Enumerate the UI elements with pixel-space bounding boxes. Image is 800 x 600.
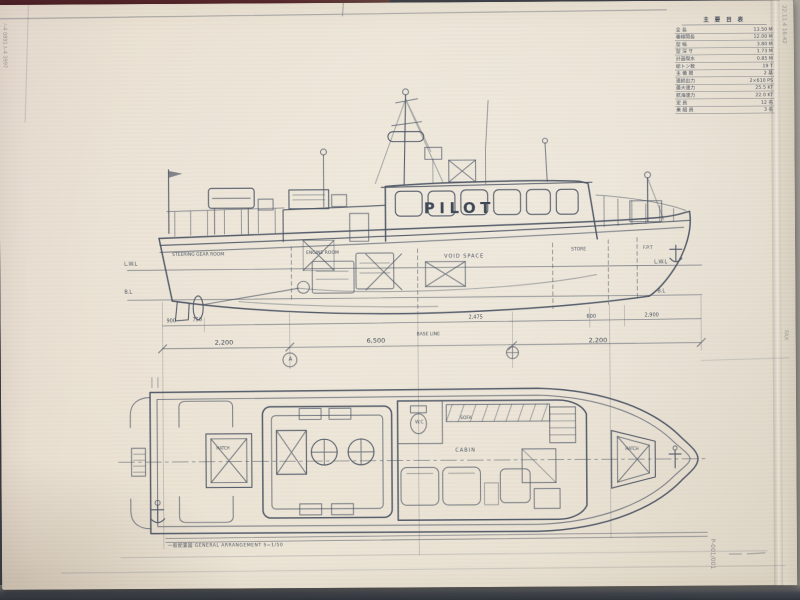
dimension-lower-2: 2,200 <box>589 337 608 344</box>
photo-of-blueprint: 主 要 目 表 全 長13.50 M 垂線間長12.00 M 型 幅3.80 M… <box>0 0 800 600</box>
spec-label: 主 機 関 <box>676 69 693 76</box>
spec-value: 12.00 M <box>754 34 773 40</box>
spec-value: 12 名 <box>761 98 773 105</box>
dimension-upper-0: 900 <box>166 319 176 324</box>
dimension-upper-4: 2,900 <box>644 313 658 318</box>
waterline-label-lwl-left: L.W.L <box>124 262 137 267</box>
spec-label: 連続出力 <box>676 77 695 84</box>
spec-value: 2×610 PS <box>750 78 773 84</box>
spec-label: 垂線間長 <box>676 33 695 40</box>
compartment-label-fpt: F.P.T <box>643 246 653 251</box>
dimension-upper-3: 600 <box>586 314 596 319</box>
dimension-upper-1: 750 <box>192 318 202 323</box>
spec-label: 全 長 <box>676 26 687 33</box>
compartment-label-engine-room: ENGINE ROOM <box>306 251 339 256</box>
spec-label: 型 幅 <box>676 40 687 47</box>
fax-timestamp-vertical: 22.11.4 16:42 <box>782 5 788 44</box>
spec-value: 3.80 M <box>757 41 773 47</box>
waterline-label-lwl-right: L.W.L <box>654 260 667 265</box>
waterline-label-bl-right: B.L <box>657 289 665 294</box>
spec-value: 3 名 <box>764 105 773 112</box>
spec-value: 0.85 M <box>757 56 773 62</box>
fax-header-left-vertical: ﾉ-4 0891 ﾙ-4 3997 <box>2 23 7 68</box>
boat-name-label: PILOT <box>424 201 495 216</box>
plan-label-cabin: CABIN <box>455 448 476 453</box>
dimension-lower-1: 6,500 <box>367 338 386 345</box>
spec-label: 定 員 <box>676 99 687 106</box>
spec-label: 最大速力 <box>676 84 695 91</box>
plan-label-wc: W.C <box>415 420 424 425</box>
fax-artifacts <box>0 0 790 573</box>
dimension-lower-0: 2,200 <box>215 340 234 347</box>
spec-row: 乗 組 員3 名 <box>675 106 774 114</box>
spec-value: 1.73 M <box>757 48 773 54</box>
compartment-label-void-space: VOID SPACE <box>444 254 484 259</box>
drawing-note: 一般配置図 GENERAL ARRANGEMENT S=1/50 <box>168 543 283 548</box>
fax-paper-sheet: 主 要 目 表 全 長13.50 M 垂線間長12.00 M 型 幅3.80 M… <box>0 0 797 590</box>
fax-label-vertical: FAX <box>784 330 790 340</box>
spec-label: 乗 組 員 <box>676 106 693 113</box>
section-marker-label: A <box>289 357 292 362</box>
plan-label-sofa: SOFA <box>460 416 472 421</box>
spec-label: 計画喫水 <box>676 55 695 62</box>
compartment-label-store: STORE <box>571 247 586 252</box>
plan-label-aft-hatch: HATCH <box>216 447 229 451</box>
spec-value: 22.0 KT <box>755 92 773 98</box>
spec-value: 13.50 M <box>754 27 773 33</box>
spec-label: 航海速力 <box>676 91 695 98</box>
spec-label: 総トン数 <box>676 62 695 69</box>
spec-value: 2 基 <box>764 69 773 76</box>
spec-value: 19 T <box>762 63 772 69</box>
spec-value: 25.5 KT <box>755 85 773 91</box>
spec-label: 型 深 サ <box>676 47 693 54</box>
dimension-upper-2: 2,475 <box>468 315 482 320</box>
baseline-label: BASE LINE <box>417 332 440 337</box>
plan-label-bow-hatch: HATCH <box>625 447 638 451</box>
waterline-label-bl-left: B.L <box>124 290 132 295</box>
spec-table-title: 主 要 目 表 <box>682 15 767 25</box>
deck-plan-view <box>118 374 709 543</box>
compartment-label-steering-gear-room: STEERING GEAR ROOM <box>172 253 224 258</box>
page-number-vertical: P-001/001 <box>710 539 716 570</box>
spec-table: 主 要 目 表 全 長13.50 M 垂線間長12.00 M 型 幅3.80 M… <box>675 15 775 114</box>
